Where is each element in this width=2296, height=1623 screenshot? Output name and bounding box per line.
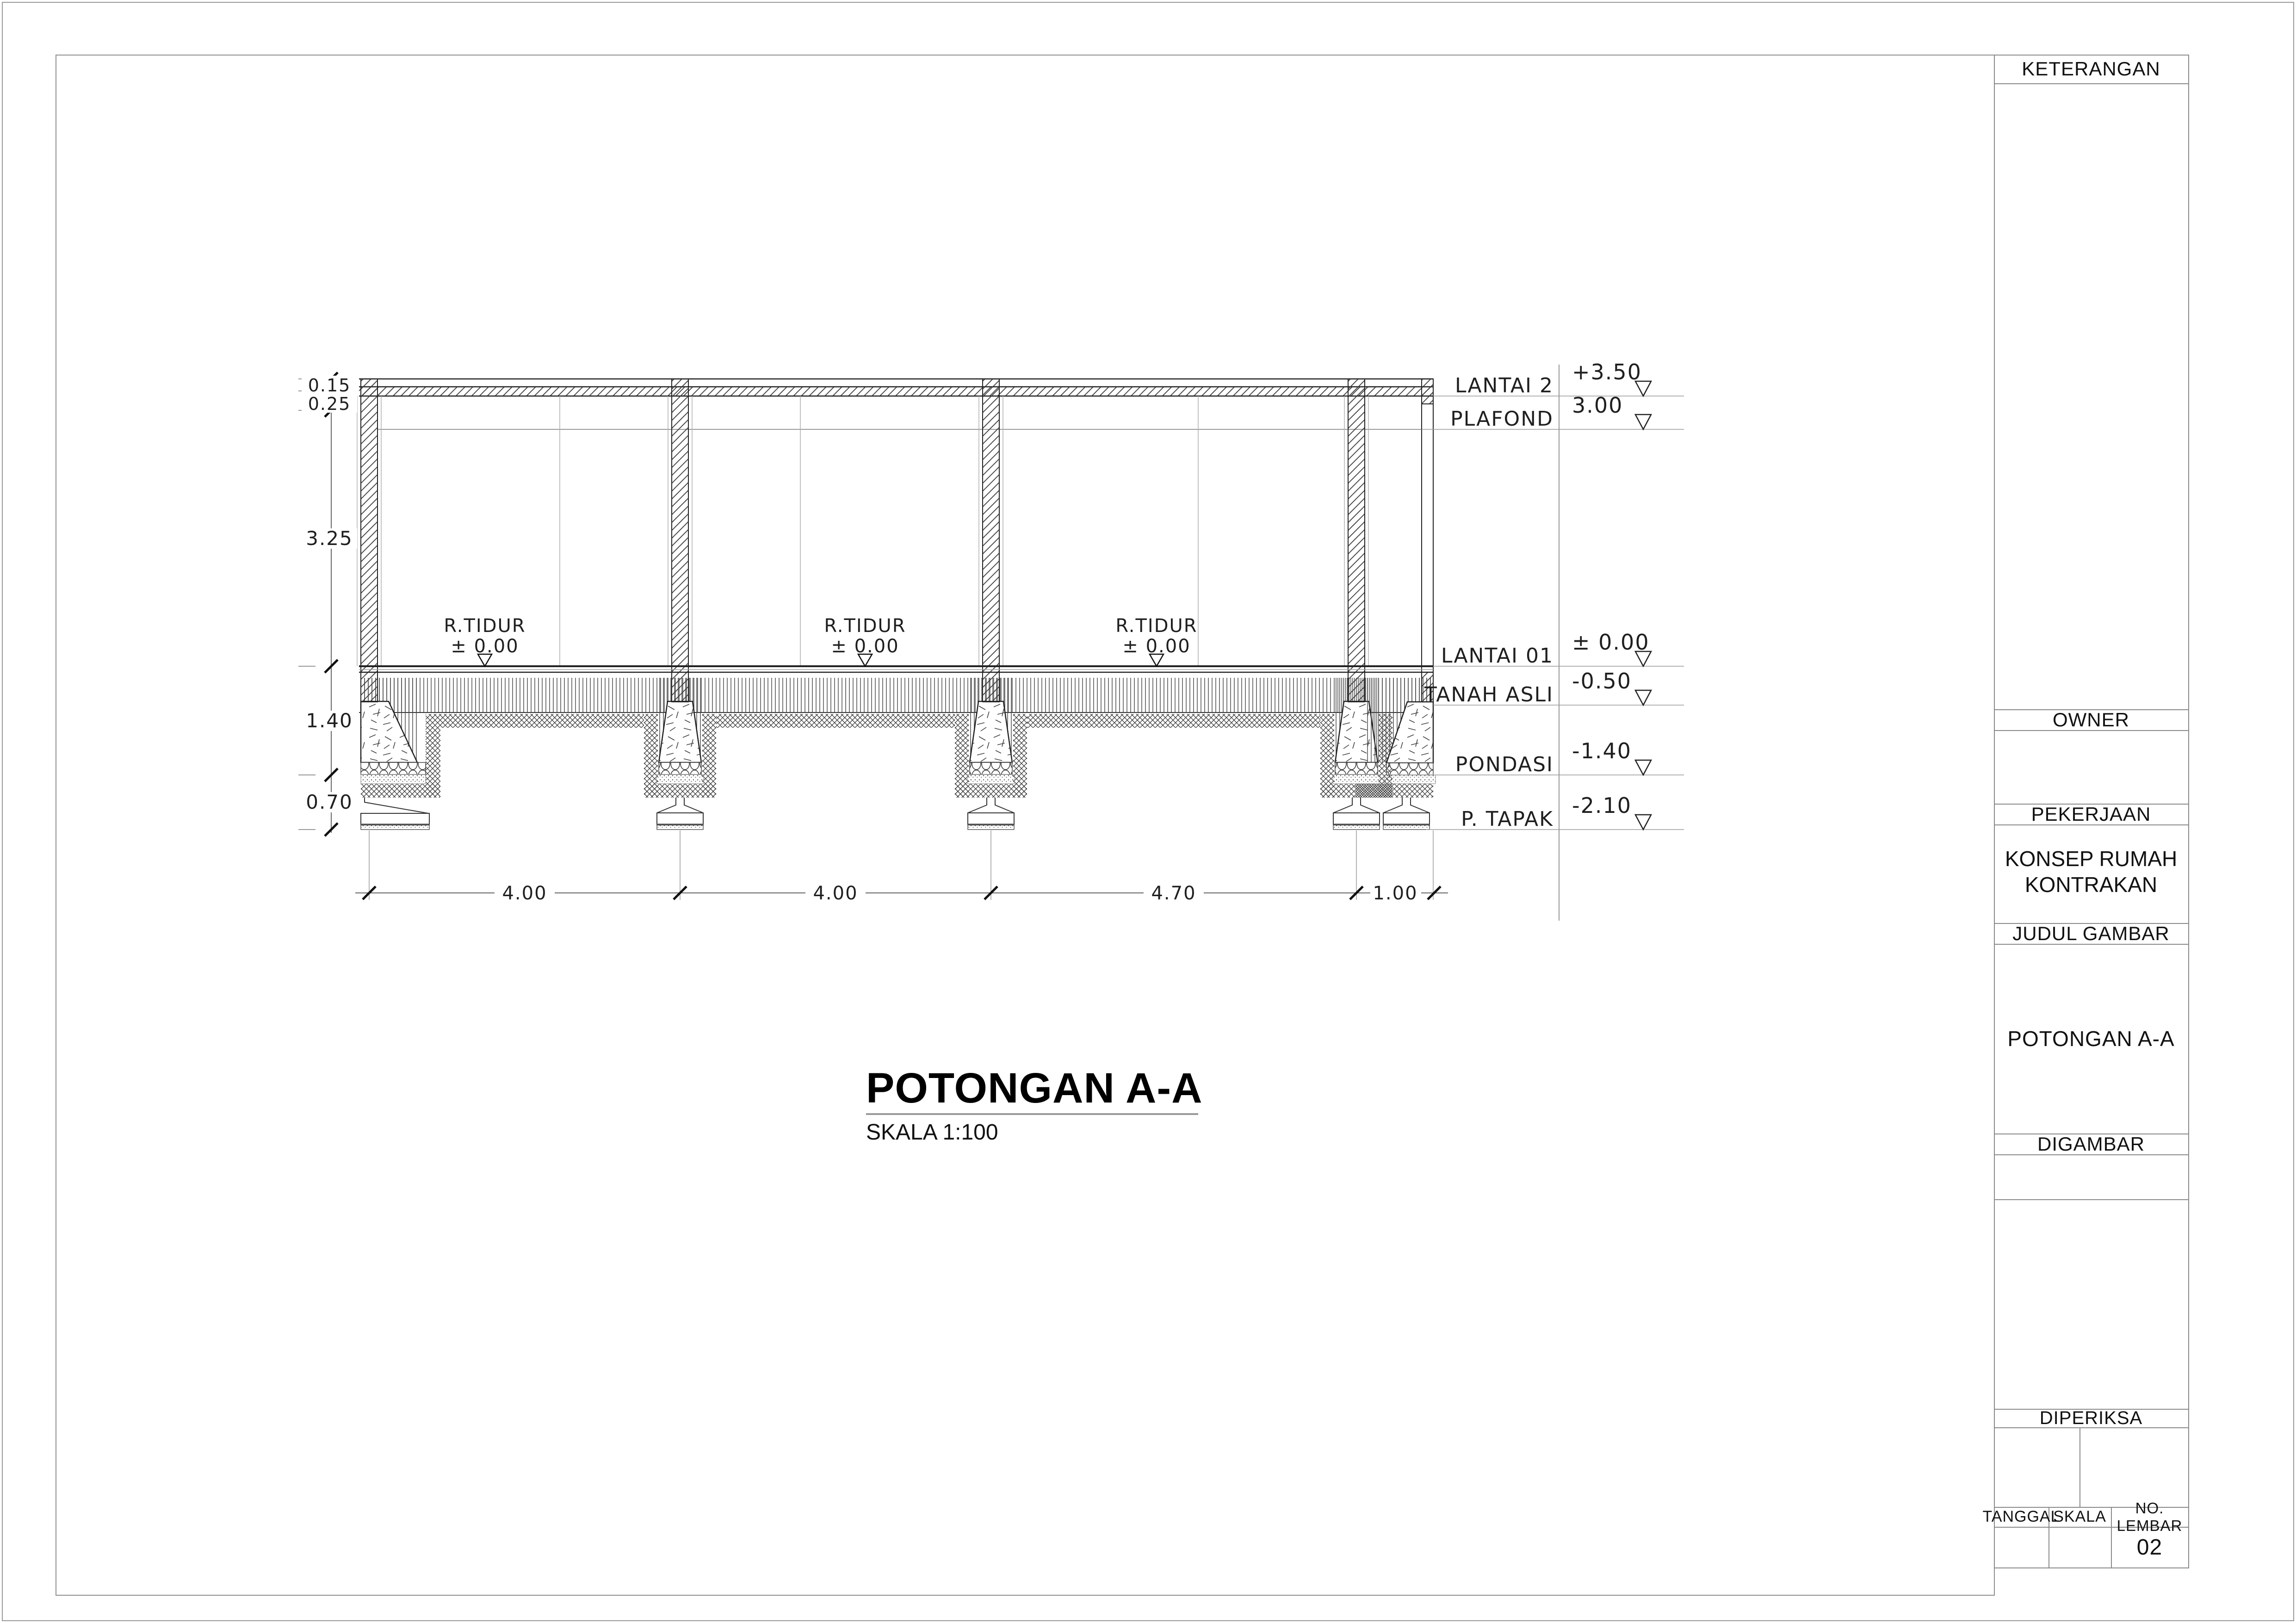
dim-label: 0.70 xyxy=(306,791,353,813)
wall-4 xyxy=(1344,379,1368,672)
dim-label: 0.15 xyxy=(308,375,351,396)
floor-fill-band xyxy=(359,678,1433,712)
dimension-chain-horizontal: 4.00 4.00 4.70 1.00 xyxy=(355,882,1448,904)
dim-label: 4.00 xyxy=(813,883,858,904)
room-label-1: R.TIDUR ± 0.00 xyxy=(444,615,526,666)
room-label-2: R.TIDUR ± 0.00 xyxy=(824,615,906,666)
level-markers: LANTAI 2 PLAFOND LANTAI 01 TANAH ASLI PO… xyxy=(1392,359,1684,921)
level-value: 3.00 xyxy=(1572,393,1623,418)
room-name: R.TIDUR xyxy=(824,615,906,637)
owner-header: OWNER xyxy=(1994,709,2188,730)
room-level-triangle-icon xyxy=(858,654,872,666)
level-label: LANTAI 01 xyxy=(1441,644,1553,668)
drawing-title: POTONGAN A-A xyxy=(866,1064,1203,1113)
dim-label: 4.00 xyxy=(502,883,547,904)
wall-1 xyxy=(357,379,381,672)
titleblock-line xyxy=(1994,1199,2189,1200)
right-edge-column xyxy=(1422,379,1433,702)
dimension-chain-vertical: 0.15 0.25 3.25 1.40 0.70 xyxy=(298,372,357,836)
pekerjaan-value: KONSEP RUMAH KONTRAKAN xyxy=(1994,846,2188,898)
wall-2 xyxy=(668,379,692,672)
foundation-right-edge xyxy=(1355,678,1436,900)
level-label: P. TAPAK xyxy=(1461,807,1553,831)
wall-3 xyxy=(979,379,1003,672)
roof-slab xyxy=(359,379,1433,396)
diperiksa-header: DIPERIKSA xyxy=(1994,1409,2188,1427)
level-label: TANAH ASLI xyxy=(1424,683,1553,706)
level-triangle-icon xyxy=(1635,815,1651,830)
level-value: ± 0.00 xyxy=(1572,630,1650,655)
section-drawing: R.TIDUR ± 0.00 R.TIDUR ± 0.00 R.TIDUR ± … xyxy=(0,0,2296,1623)
level-label: LANTAI 2 xyxy=(1455,374,1553,397)
room-level-triangle-icon xyxy=(1150,654,1163,666)
title-underline xyxy=(866,1113,1198,1115)
titleblock-line xyxy=(1994,83,2189,84)
room-name: R.TIDUR xyxy=(1115,615,1197,637)
dim-label: 1.40 xyxy=(306,709,353,732)
digambar-header: DIGAMBAR xyxy=(1994,1134,2188,1154)
ground-crosshatch-band xyxy=(440,714,1320,728)
room-name: R.TIDUR xyxy=(444,615,526,637)
tanggal-header: TANGGAL xyxy=(1994,1507,2048,1527)
judul-gambar-value: POTONGAN A-A xyxy=(1994,944,2188,1134)
room-label-3: R.TIDUR ± 0.00 xyxy=(1115,615,1197,666)
level-value: -2.10 xyxy=(1572,793,1632,818)
titleblock-line xyxy=(1994,1567,2189,1568)
pekerjaan-header: PEKERJAAN xyxy=(1994,804,2188,824)
titleblock-divider xyxy=(2079,1427,2080,1507)
level-triangle-icon xyxy=(1635,415,1651,429)
dim-label: 3.25 xyxy=(306,527,353,550)
skala-header: SKALA xyxy=(2048,1507,2111,1527)
judul-gambar-header: JUDUL GAMBAR xyxy=(1994,923,2188,944)
drawing-sheet: R.TIDUR ± 0.00 R.TIDUR ± 0.00 R.TIDUR ± … xyxy=(0,0,2296,1623)
keterangan-header: KETERANGAN xyxy=(1994,55,2188,83)
level-triangle-icon xyxy=(1635,760,1651,775)
room-level-triangle-icon xyxy=(478,654,492,666)
level-triangle-icon xyxy=(1635,690,1651,705)
level-label: PONDASI xyxy=(1455,753,1553,776)
level-label: PLAFOND xyxy=(1450,407,1553,431)
floor-slab-lines xyxy=(359,666,1433,672)
pekerjaan-value-line2: KONTRAKAN xyxy=(1994,872,2188,898)
dim-label: 0.25 xyxy=(308,394,351,414)
drawing-scale: SKALA 1:100 xyxy=(866,1120,998,1145)
level-value: -1.40 xyxy=(1572,738,1632,763)
titleblock-border xyxy=(2188,55,2189,1568)
pekerjaan-value-line1: KONSEP RUMAH xyxy=(1994,846,2188,872)
level-value: +3.50 xyxy=(1572,359,1642,384)
no-lembar-header: NO. LEMBAR xyxy=(2111,1507,2188,1527)
level-value: -0.50 xyxy=(1572,669,1632,694)
dim-label: 4.70 xyxy=(1151,883,1196,904)
sheet-number: 02 xyxy=(2111,1527,2188,1567)
dim-label: 1.00 xyxy=(1373,883,1417,904)
